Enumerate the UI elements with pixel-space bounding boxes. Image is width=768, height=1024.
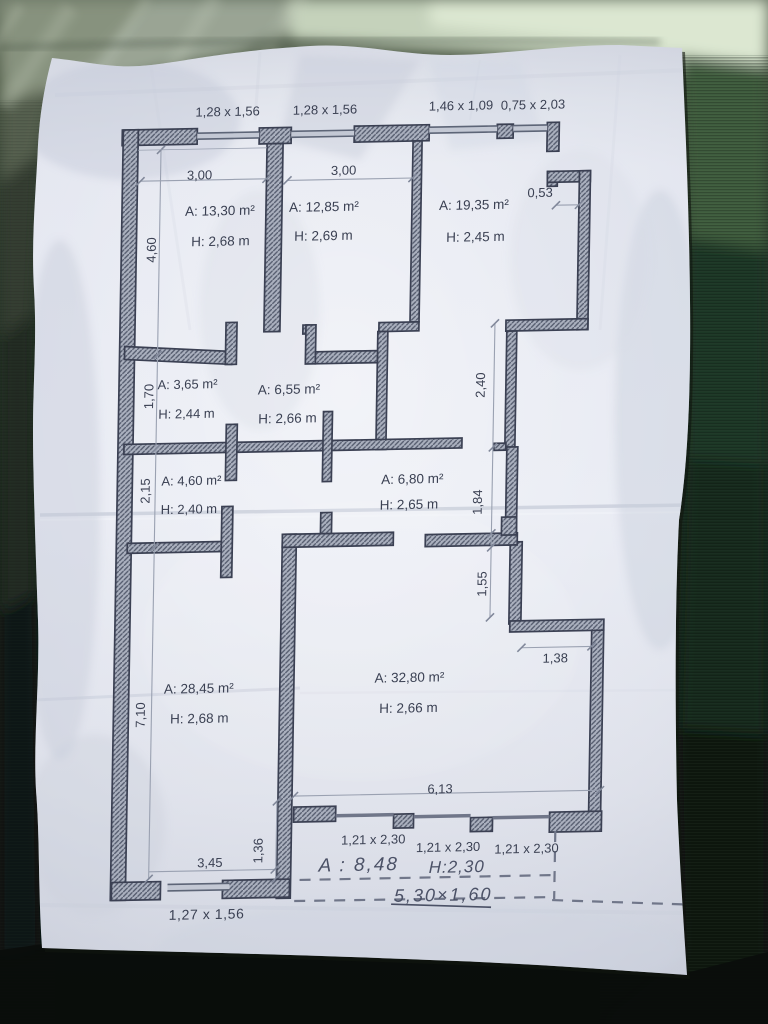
svg-text:1,28 x 1,56: 1,28 x 1,56 xyxy=(293,102,358,118)
svg-text:A: 6,80 m²: A: 6,80 m² xyxy=(381,471,444,487)
svg-text:1,28 x 1,56: 1,28 x 1,56 xyxy=(195,103,260,119)
svg-text:3,45: 3,45 xyxy=(197,855,223,870)
svg-text:5,30×1,60: 5,30×1,60 xyxy=(394,884,493,906)
svg-text:3,00: 3,00 xyxy=(187,167,213,182)
svg-text:2,40: 2,40 xyxy=(473,372,488,398)
svg-text:2,15: 2,15 xyxy=(137,478,152,504)
svg-text:H: 2,68 m: H: 2,68 m xyxy=(170,710,229,726)
svg-text:7,10: 7,10 xyxy=(133,702,148,728)
svg-text:A: 4,60 m²: A: 4,60 m² xyxy=(161,472,222,488)
svg-text:1,21 x 2,30: 1,21 x 2,30 xyxy=(341,831,406,847)
svg-text:1,38: 1,38 xyxy=(542,650,568,665)
svg-text:H: 2,44 m: H: 2,44 m xyxy=(158,406,215,422)
svg-text:0,53: 0,53 xyxy=(527,185,553,200)
svg-text:6,13: 6,13 xyxy=(427,781,453,796)
svg-text:H: 2,69 m: H: 2,69 m xyxy=(294,228,353,244)
svg-text:A: 13,30 m²: A: 13,30 m² xyxy=(185,203,256,219)
svg-text:1,46 x 1,09: 1,46 x 1,09 xyxy=(429,97,494,113)
svg-text:1,21 x 2,30: 1,21 x 2,30 xyxy=(494,840,559,856)
svg-text:1,27 x 1,56: 1,27 x 1,56 xyxy=(169,905,245,922)
svg-text:H: 2,40 m: H: 2,40 m xyxy=(161,501,218,517)
svg-text:H: 2,66 m: H: 2,66 m xyxy=(379,700,438,716)
svg-text:4,60: 4,60 xyxy=(144,237,159,263)
svg-text:A: 3,65 m²: A: 3,65 m² xyxy=(157,376,218,392)
svg-text:A: 6,55 m²: A: 6,55 m² xyxy=(258,381,321,397)
svg-text:1,70: 1,70 xyxy=(141,384,156,410)
svg-text:A: 19,35 m²: A: 19,35 m² xyxy=(439,197,510,213)
svg-text:H: 2,66 m: H: 2,66 m xyxy=(258,410,317,426)
svg-text:1,84: 1,84 xyxy=(470,489,485,515)
svg-text:A: 12,85 m²: A: 12,85 m² xyxy=(289,199,360,215)
svg-text:1,21 x 2,30: 1,21 x 2,30 xyxy=(416,839,481,855)
svg-text:H: 2,68 m: H: 2,68 m xyxy=(191,233,250,249)
svg-text:A: 28,45 m²: A: 28,45 m² xyxy=(164,680,235,696)
svg-text:H: 2,65 m: H: 2,65 m xyxy=(380,496,439,512)
svg-text:A : 8,48: A : 8,48 xyxy=(317,854,399,877)
svg-text:H: 2,45 m: H: 2,45 m xyxy=(446,229,505,245)
svg-text:1,36: 1,36 xyxy=(250,838,265,864)
svg-text:A: 32,80 m²: A: 32,80 m² xyxy=(374,669,445,685)
svg-text:3,00: 3,00 xyxy=(331,163,357,178)
svg-text:0,75 x 2,03: 0,75 x 2,03 xyxy=(501,97,566,113)
svg-text:H:2,30: H:2,30 xyxy=(429,857,485,877)
svg-text:1,55: 1,55 xyxy=(474,571,489,597)
